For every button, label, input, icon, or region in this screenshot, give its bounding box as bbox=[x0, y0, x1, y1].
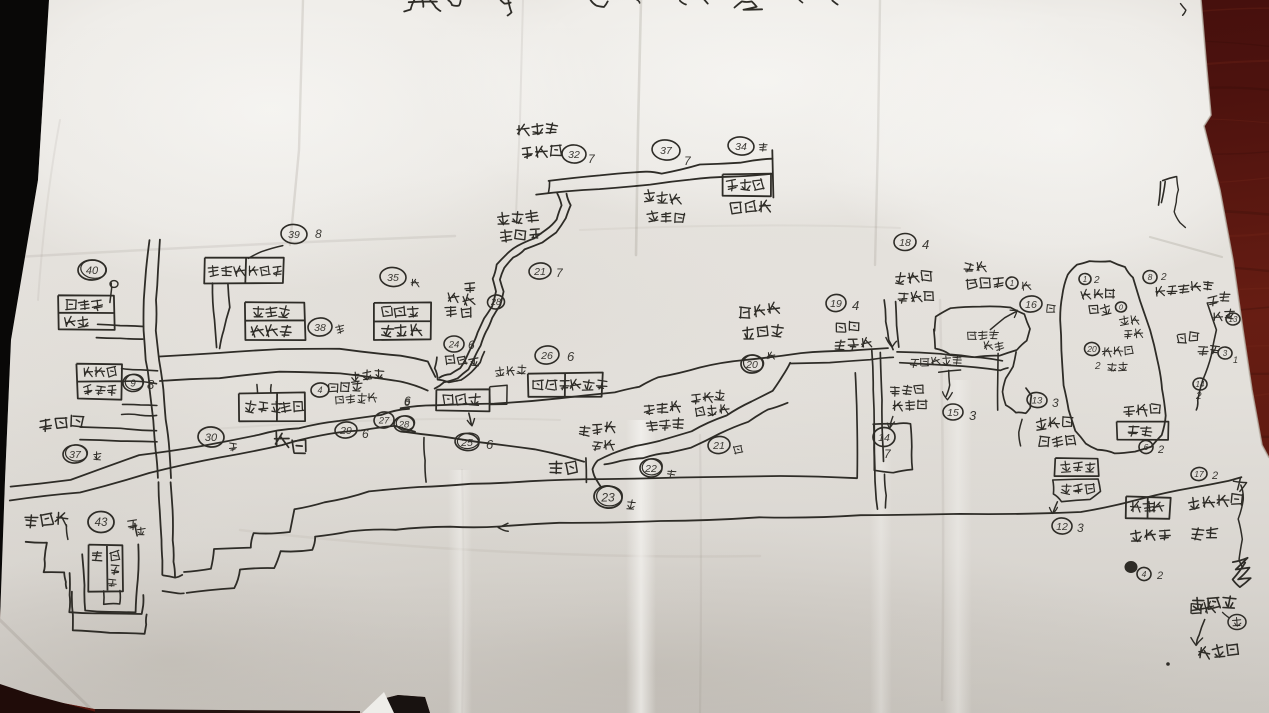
svg-text:21: 21 bbox=[712, 440, 725, 452]
svg-text:28: 28 bbox=[398, 419, 410, 430]
svg-text:28: 28 bbox=[490, 297, 501, 307]
svg-text:8: 8 bbox=[147, 377, 155, 392]
svg-text:40: 40 bbox=[86, 265, 99, 277]
svg-text:3: 3 bbox=[1052, 396, 1059, 410]
svg-text:9: 9 bbox=[130, 379, 136, 390]
svg-text:20: 20 bbox=[745, 359, 758, 371]
svg-text:37: 37 bbox=[660, 145, 673, 157]
svg-text:34: 34 bbox=[735, 141, 747, 153]
svg-text:25: 25 bbox=[460, 437, 473, 449]
svg-text:12: 12 bbox=[1056, 521, 1068, 533]
svg-text:13: 13 bbox=[1229, 315, 1238, 324]
svg-text:14: 14 bbox=[878, 432, 890, 444]
svg-text:1: 1 bbox=[1010, 279, 1014, 288]
svg-text:2: 2 bbox=[1211, 470, 1218, 482]
svg-text:30: 30 bbox=[205, 432, 218, 444]
svg-text:27: 27 bbox=[378, 415, 390, 426]
svg-text:4: 4 bbox=[1142, 569, 1147, 579]
svg-text:29: 29 bbox=[339, 425, 352, 437]
svg-text:6: 6 bbox=[468, 338, 475, 352]
svg-text:14: 14 bbox=[1196, 380, 1205, 389]
svg-text:32: 32 bbox=[568, 149, 580, 161]
svg-text:1: 1 bbox=[1233, 355, 1238, 365]
svg-text:8: 8 bbox=[1148, 272, 1153, 282]
svg-text:2: 2 bbox=[1093, 275, 1100, 286]
svg-text:2: 2 bbox=[1094, 361, 1101, 372]
svg-text:2: 2 bbox=[1160, 272, 1167, 283]
svg-text:24: 24 bbox=[448, 339, 460, 350]
svg-text:6: 6 bbox=[486, 437, 494, 452]
svg-text:16: 16 bbox=[1025, 299, 1037, 311]
svg-text:2: 2 bbox=[1195, 391, 1202, 402]
svg-text:39: 39 bbox=[288, 229, 300, 241]
svg-text:37: 37 bbox=[69, 449, 82, 461]
svg-text:2: 2 bbox=[1157, 444, 1164, 456]
svg-text:38: 38 bbox=[314, 322, 326, 334]
svg-text:1: 1 bbox=[1083, 275, 1087, 284]
svg-text:2: 2 bbox=[1156, 570, 1163, 582]
svg-text:26: 26 bbox=[540, 350, 553, 362]
svg-text:3: 3 bbox=[1077, 521, 1084, 535]
svg-text:6: 6 bbox=[567, 349, 575, 364]
svg-text:6: 6 bbox=[404, 394, 411, 408]
svg-text:3: 3 bbox=[1223, 349, 1228, 358]
svg-text:18: 18 bbox=[899, 237, 911, 249]
svg-text:6: 6 bbox=[362, 427, 369, 441]
svg-text:4: 4 bbox=[922, 237, 929, 252]
svg-text:15: 15 bbox=[947, 407, 959, 419]
svg-text:3: 3 bbox=[969, 408, 977, 423]
svg-text:20: 20 bbox=[1086, 344, 1097, 354]
svg-text:19: 19 bbox=[830, 298, 842, 310]
svg-text:6: 6 bbox=[1144, 442, 1149, 452]
svg-text:21: 21 bbox=[533, 266, 546, 278]
svg-text:8: 8 bbox=[315, 227, 322, 241]
svg-text:17: 17 bbox=[1194, 469, 1204, 479]
svg-text:22: 22 bbox=[644, 463, 657, 475]
svg-text:4: 4 bbox=[852, 298, 859, 313]
svg-text:4: 4 bbox=[317, 385, 322, 395]
svg-text:13: 13 bbox=[1032, 395, 1043, 406]
svg-text:43: 43 bbox=[95, 517, 108, 529]
svg-text:23: 23 bbox=[600, 490, 615, 504]
svg-text:35: 35 bbox=[387, 272, 399, 284]
